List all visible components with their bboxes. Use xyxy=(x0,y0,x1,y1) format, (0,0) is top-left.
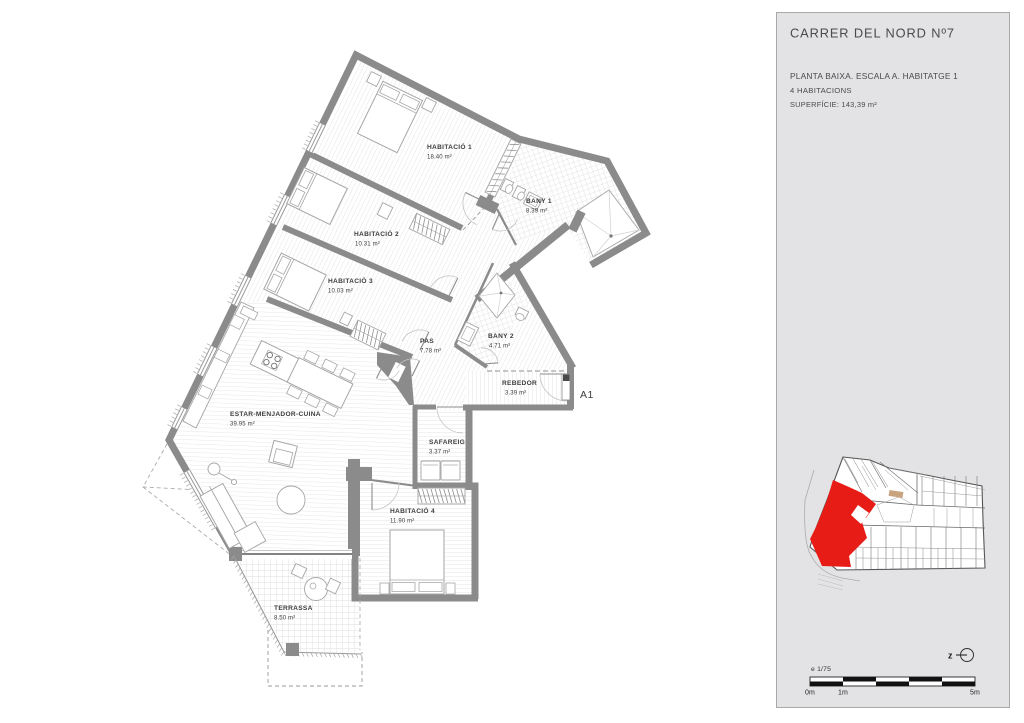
svg-text:1m: 1m xyxy=(838,690,848,697)
svg-text:11.90 m²: 11.90 m² xyxy=(390,519,414,525)
svg-text:0m: 0m xyxy=(805,690,815,697)
svg-text:BANY 1: BANY 1 xyxy=(526,198,552,205)
svg-text:4 HABITACIONS: 4 HABITACIONS xyxy=(790,86,852,95)
svg-text:SAFAREIG: SAFAREIG xyxy=(429,439,465,446)
svg-text:3.39 m²: 3.39 m² xyxy=(505,391,526,397)
svg-text:CARRER DEL NORD Nº7: CARRER DEL NORD Nº7 xyxy=(790,26,955,41)
svg-text:PAS: PAS xyxy=(420,338,434,345)
svg-text:BANY 2: BANY 2 xyxy=(488,333,514,340)
svg-text:ESTAR-MENJADOR-CUINA: ESTAR-MENJADOR-CUINA xyxy=(230,411,321,418)
svg-text:SUPERFÍCIE: 143,39 m²: SUPERFÍCIE: 143,39 m² xyxy=(790,100,877,109)
svg-text:8.50 m²: 8.50 m² xyxy=(274,616,295,622)
svg-text:10.03 m²: 10.03 m² xyxy=(328,289,353,295)
svg-text:z: z xyxy=(948,651,953,661)
svg-text:8.39 m²: 8.39 m² xyxy=(526,209,547,215)
svg-text:A1: A1 xyxy=(580,389,594,401)
svg-text:5m: 5m xyxy=(970,690,980,697)
svg-text:e 1/75: e 1/75 xyxy=(811,666,831,673)
svg-text:HABITACIÓ 3: HABITACIÓ 3 xyxy=(328,276,373,285)
svg-text:18.40 m²: 18.40 m² xyxy=(427,155,452,161)
svg-text:10.31 m²: 10.31 m² xyxy=(355,242,380,248)
svg-text:39.95 m²: 39.95 m² xyxy=(230,422,255,428)
svg-text:HABITACIÓ 2: HABITACIÓ 2 xyxy=(354,229,399,238)
svg-text:HABITACIÓ 1: HABITACIÓ 1 xyxy=(427,142,472,151)
svg-text:3.37 m²: 3.37 m² xyxy=(429,450,450,456)
svg-text:TERRASSA: TERRASSA xyxy=(274,605,313,612)
svg-text:7.78 m²: 7.78 m² xyxy=(420,349,441,355)
svg-text:PLANTA BAIXA. ESCALA A. HABITA: PLANTA BAIXA. ESCALA A. HABITATGE 1 xyxy=(790,71,958,81)
svg-text:HABITACIÓ 4: HABITACIÓ 4 xyxy=(390,506,435,515)
svg-text:4.71 m²: 4.71 m² xyxy=(489,344,510,350)
svg-text:REBEDOR: REBEDOR xyxy=(502,380,537,387)
